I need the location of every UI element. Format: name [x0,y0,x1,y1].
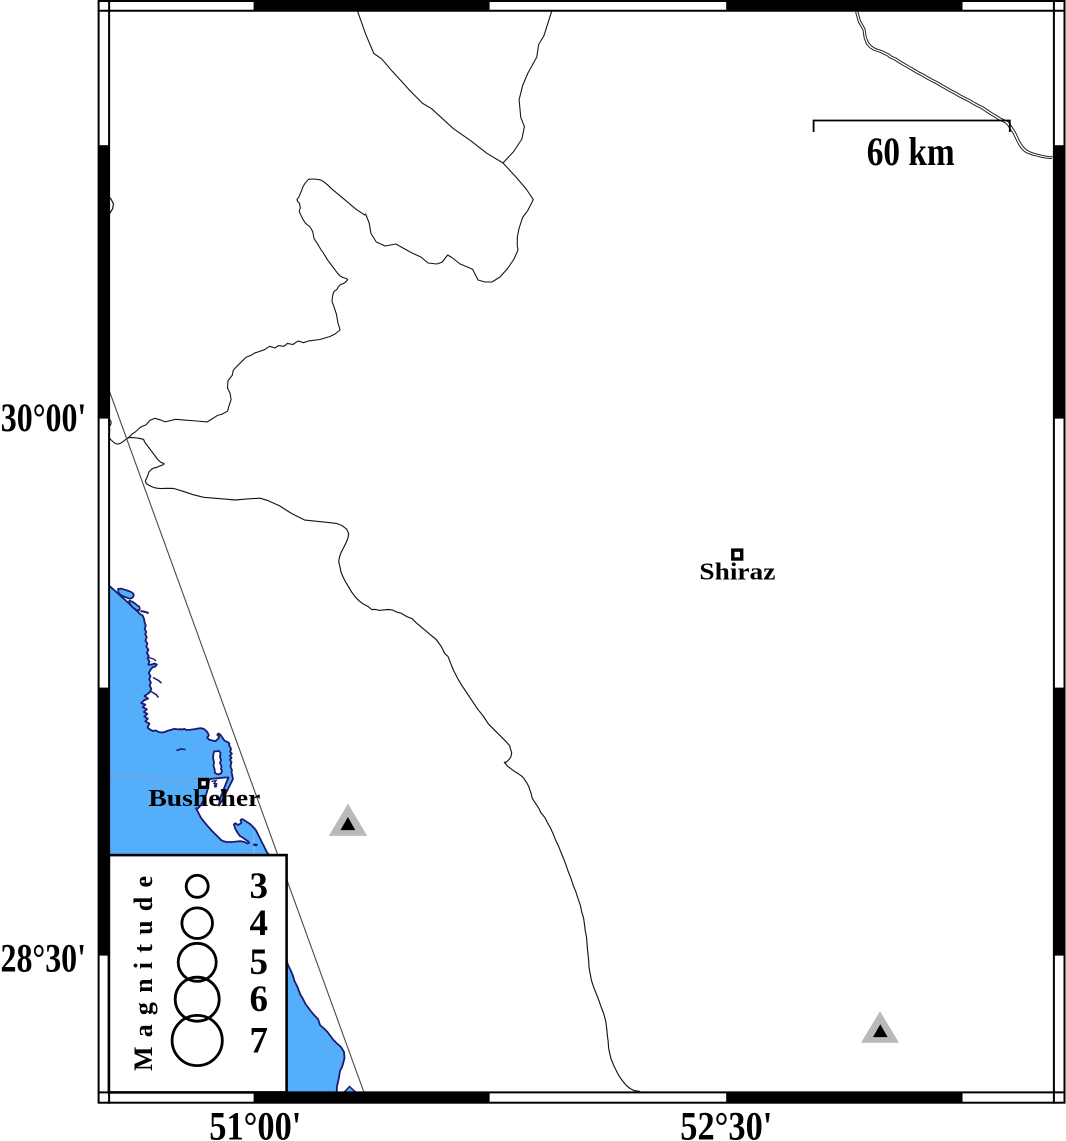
svg-text:52°30': 52°30' [680,1104,772,1141]
svg-text:7: 7 [249,1021,268,1062]
svg-text:28°30': 28°30' [1,936,87,981]
svg-text:Busheher: Busheher [148,785,260,812]
svg-text:51°00': 51°00' [209,1104,301,1141]
svg-text:6: 6 [249,979,268,1020]
svg-text:3: 3 [249,866,268,907]
svg-text:60 km: 60 km [867,129,955,174]
svg-text:Shiraz: Shiraz [699,559,775,586]
svg-text:5: 5 [249,942,268,983]
svg-text:30°00': 30°00' [1,395,87,440]
svg-text:4: 4 [249,903,268,944]
